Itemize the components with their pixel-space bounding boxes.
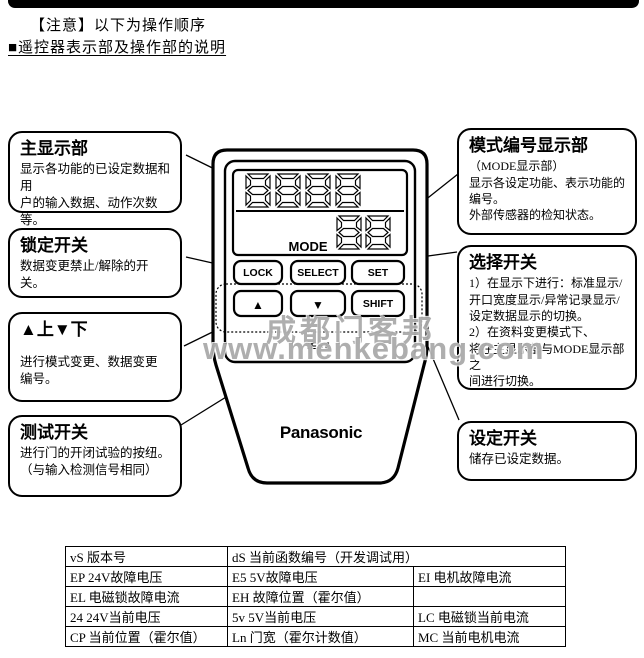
callout-mode-display-body: （MODE显示部） 显示各设定功能、表示功能的 编号。 外部传感器的检知状态。 — [469, 158, 627, 223]
parameter-code-table: vS 版本号 dS 当前函数编号（开发调试用） EP 24V故障电压 E5 5V… — [65, 546, 566, 647]
table-cell: CP 当前位置（霍尔值） — [66, 627, 228, 647]
callout-select-switch-body: 1）在显示下进行：标准显示/ 开口宽度显示/异常记录显示/ 设定数据显示的切换。… — [469, 275, 627, 389]
table-cell: EL 电磁锁故障电流 — [66, 587, 228, 607]
table-row: EP 24V故障电压 E5 5V故障电压 EI 电机故障电流 — [66, 567, 566, 587]
callout-up-down-body: 进行模式变更、数据变更 编号。 — [20, 354, 172, 388]
table-cell: vS 版本号 — [66, 547, 228, 567]
table-cell: dS 当前函数编号（开发调试用） — [228, 547, 566, 567]
callout-test-switch: 测试开关 进行门的开闭试验的按纽。 （与输入检测信号相同） — [8, 415, 182, 497]
manual-page: 【注意】以下为操作顺序 ■遥控器表示部及操作部的说明 — [0, 0, 644, 658]
up-button-arrow-icon: ▲ — [252, 298, 264, 312]
table-cell: MC 当前电机电流 — [414, 627, 566, 647]
callout-select-switch: 选择开关 1）在显示下进行：标准显示/ 开口宽度显示/异常记录显示/ 设定数据显… — [457, 245, 637, 390]
callout-lock-switch-title: 锁定开关 — [20, 236, 172, 256]
shift-button-label: SHIFT — [363, 298, 394, 310]
table-cell: E5 5V故障电压 — [228, 567, 414, 587]
callout-main-display-body: 显示各功能的已设定数据和用 户的输入数据、动作次数等。 — [20, 161, 172, 228]
table-cell: EH 故障位置（霍尔值） — [228, 587, 414, 607]
callout-test-switch-body: 进行门的开闭试验的按纽。 （与输入检测信号相同） — [20, 445, 172, 479]
table-cell — [414, 587, 566, 607]
table-cell: EI 电机故障电流 — [414, 567, 566, 587]
table-cell: EP 24V故障电压 — [66, 567, 228, 587]
callout-mode-display: 模式编号显示部 （MODE显示部） 显示各设定功能、表示功能的 编号。 外部传感… — [457, 128, 637, 235]
table-cell: 24 24V当前电压 — [66, 607, 228, 627]
panasonic-logo: Panasonic — [280, 423, 362, 442]
callout-mode-display-title: 模式编号显示部 — [469, 136, 627, 156]
mode-label: MODE — [289, 239, 328, 254]
table-row: CP 当前位置（霍尔值） Ln 门宽（霍尔计数值） MC 当前电机电流 — [66, 627, 566, 647]
test-button-label[interactable]: TEST — [305, 341, 329, 352]
callout-set-switch: 设定开关 储存已设定数据。 — [457, 421, 637, 481]
callout-set-switch-title: 设定开关 — [469, 429, 627, 449]
table-row: EL 电磁锁故障电流 EH 故障位置（霍尔值） — [66, 587, 566, 607]
callout-up-down: ▲上▼下 进行模式变更、数据变更 编号。 — [8, 312, 182, 402]
select-button-label: SELECT — [297, 267, 339, 279]
callout-set-switch-body: 储存已设定数据。 — [469, 451, 627, 468]
callout-main-display-title: 主显示部 — [20, 139, 172, 159]
table-cell: LC 电磁锁当前电流 — [414, 607, 566, 627]
callout-main-display: 主显示部 显示各功能的已设定数据和用 户的输入数据、动作次数等。 — [8, 131, 182, 213]
table-cell: Ln 门宽（霍尔计数值） — [228, 627, 414, 647]
callout-lock-switch-body: 数据变更禁止/解除的开关。 — [20, 258, 172, 292]
lock-button-label: LOCK — [243, 267, 273, 279]
callout-test-switch-title: 测试开关 — [20, 423, 172, 443]
callout-lock-switch: 锁定开关 数据变更禁止/解除的开关。 — [8, 228, 182, 298]
table-cell: 5v 5V当前电压 — [228, 607, 414, 627]
table-row: 24 24V当前电压 5v 5V当前电压 LC 电磁锁当前电流 — [66, 607, 566, 627]
set-button-label: SET — [368, 267, 389, 279]
table-row: vS 版本号 dS 当前函数编号（开发调试用） — [66, 547, 566, 567]
callout-select-switch-title: 选择开关 — [469, 253, 627, 273]
down-button-arrow-icon: ▼ — [312, 298, 324, 312]
callout-up-down-title: ▲上▼下 — [20, 320, 172, 340]
